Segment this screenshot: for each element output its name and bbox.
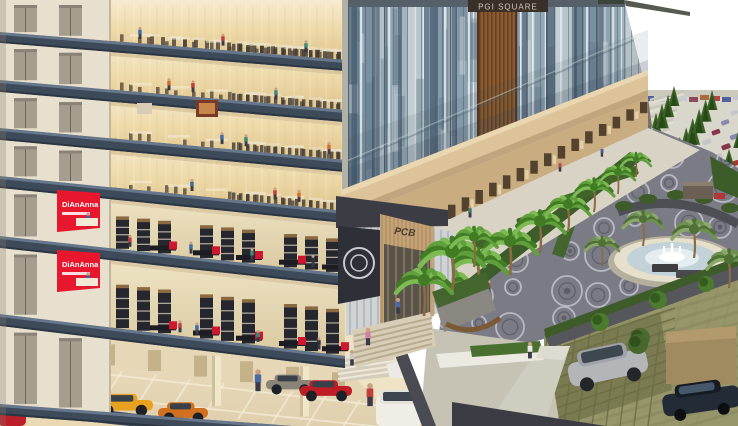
svg-text:DiAnAnna: DiAnAnna	[62, 200, 99, 209]
svg-text:PCB: PCB	[394, 226, 416, 239]
svg-text:DiAnAnna: DiAnAnna	[62, 260, 99, 269]
svg-text:PGI SQUARE: PGI SQUARE	[478, 3, 538, 12]
